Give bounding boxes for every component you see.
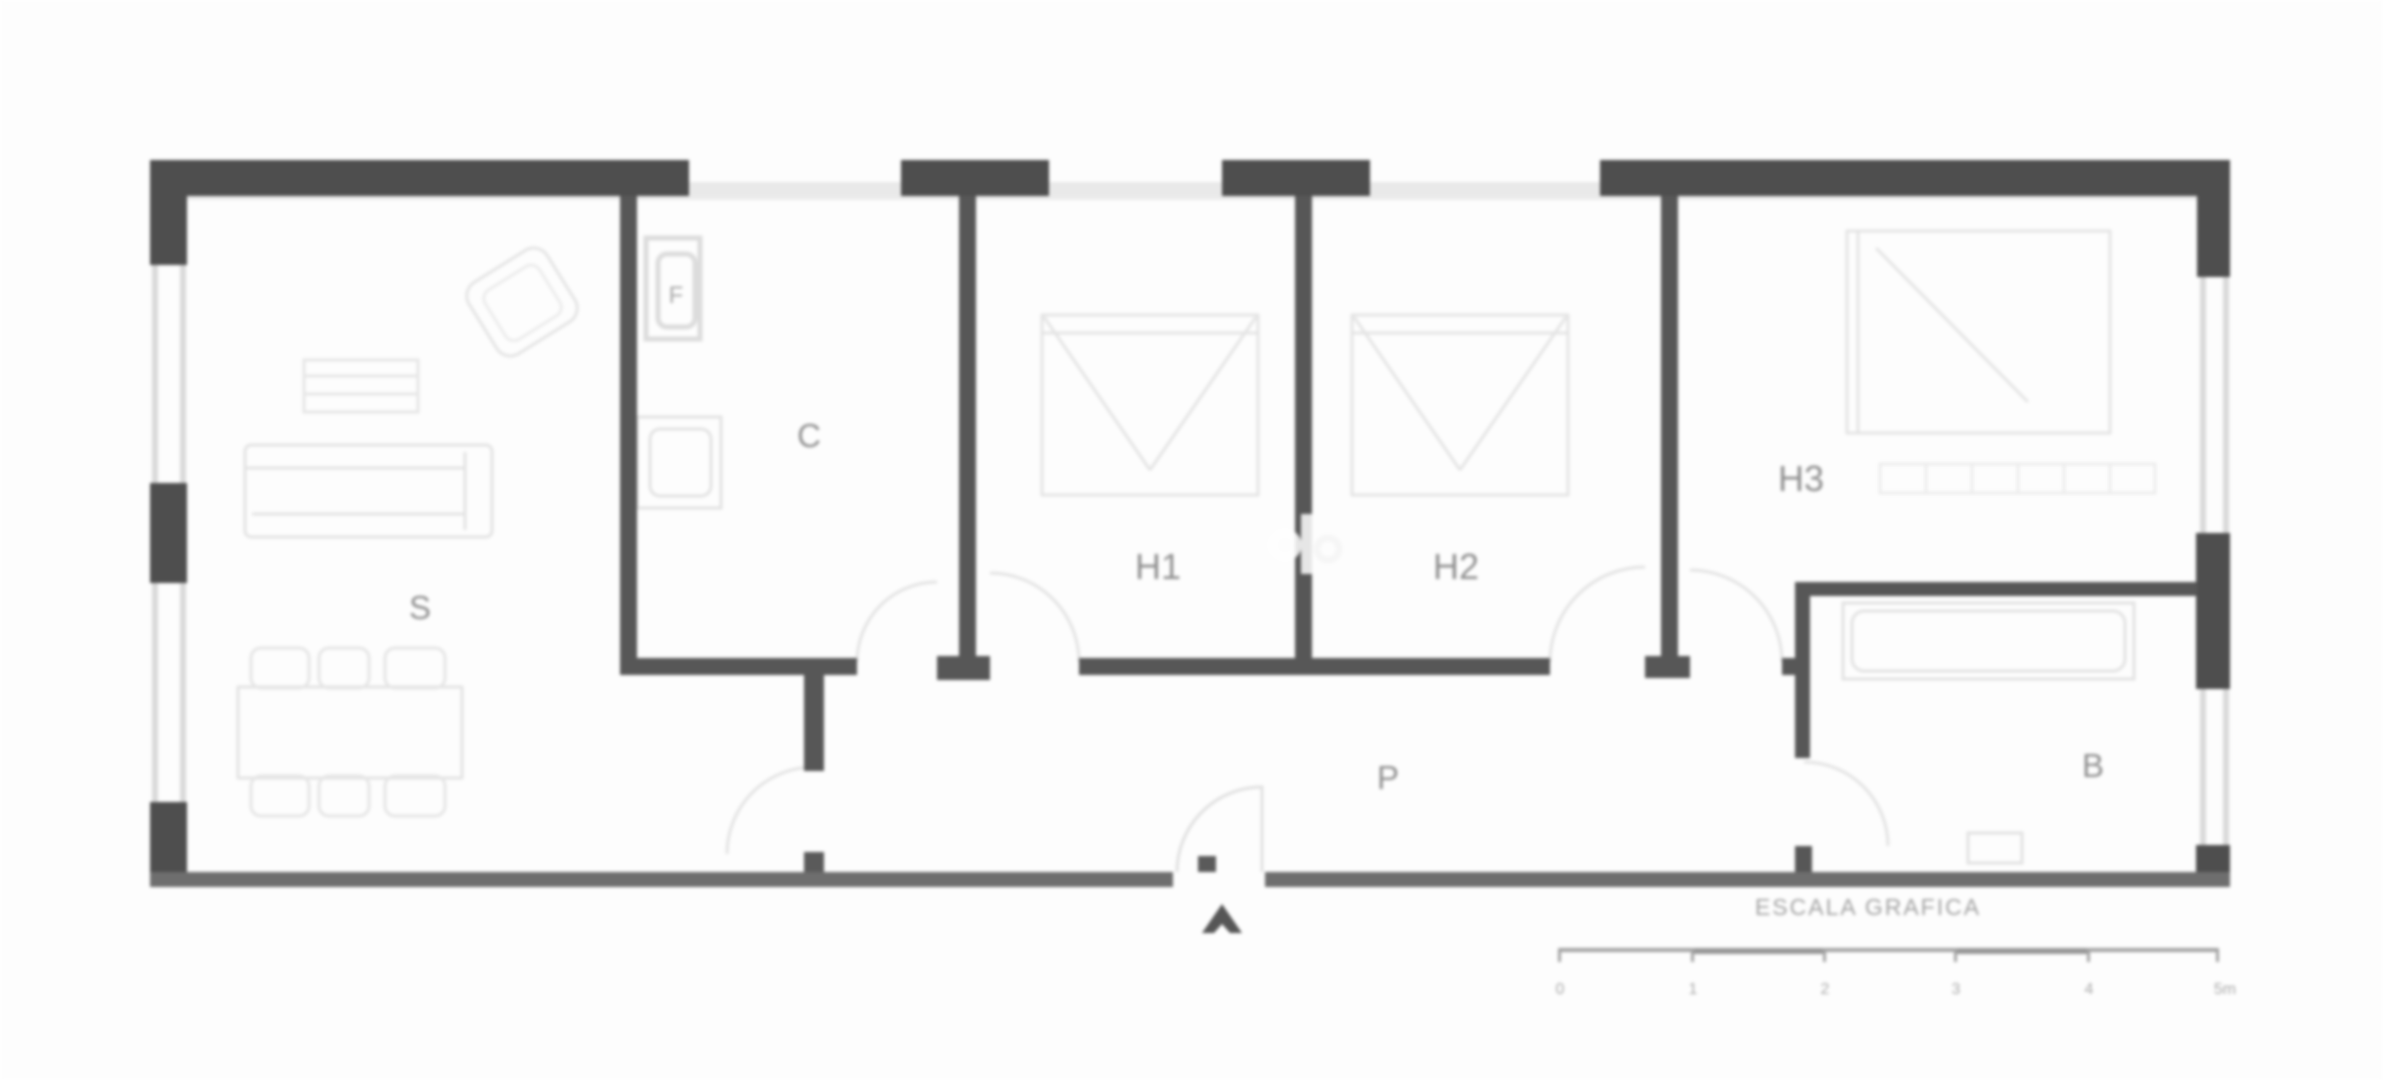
svg-text:H1: H1: [1135, 546, 1181, 587]
svg-text:0: 0: [1556, 981, 1565, 998]
svg-text:3: 3: [1952, 981, 1961, 998]
svg-text:5m: 5m: [2214, 981, 2236, 998]
svg-text:4: 4: [2085, 981, 2094, 998]
svg-text:P: P: [1377, 759, 1399, 796]
svg-text:ESCALA GRAFICA: ESCALA GRAFICA: [1755, 894, 1981, 920]
svg-text:F: F: [669, 282, 684, 309]
svg-text:1: 1: [1689, 981, 1698, 998]
svg-text:B: B: [2082, 747, 2104, 784]
svg-text:H3: H3: [1778, 458, 1824, 499]
svg-text:H2: H2: [1433, 546, 1479, 587]
svg-text:S: S: [409, 589, 431, 626]
svg-text:2: 2: [1821, 981, 1830, 998]
svg-text:C: C: [797, 417, 821, 454]
